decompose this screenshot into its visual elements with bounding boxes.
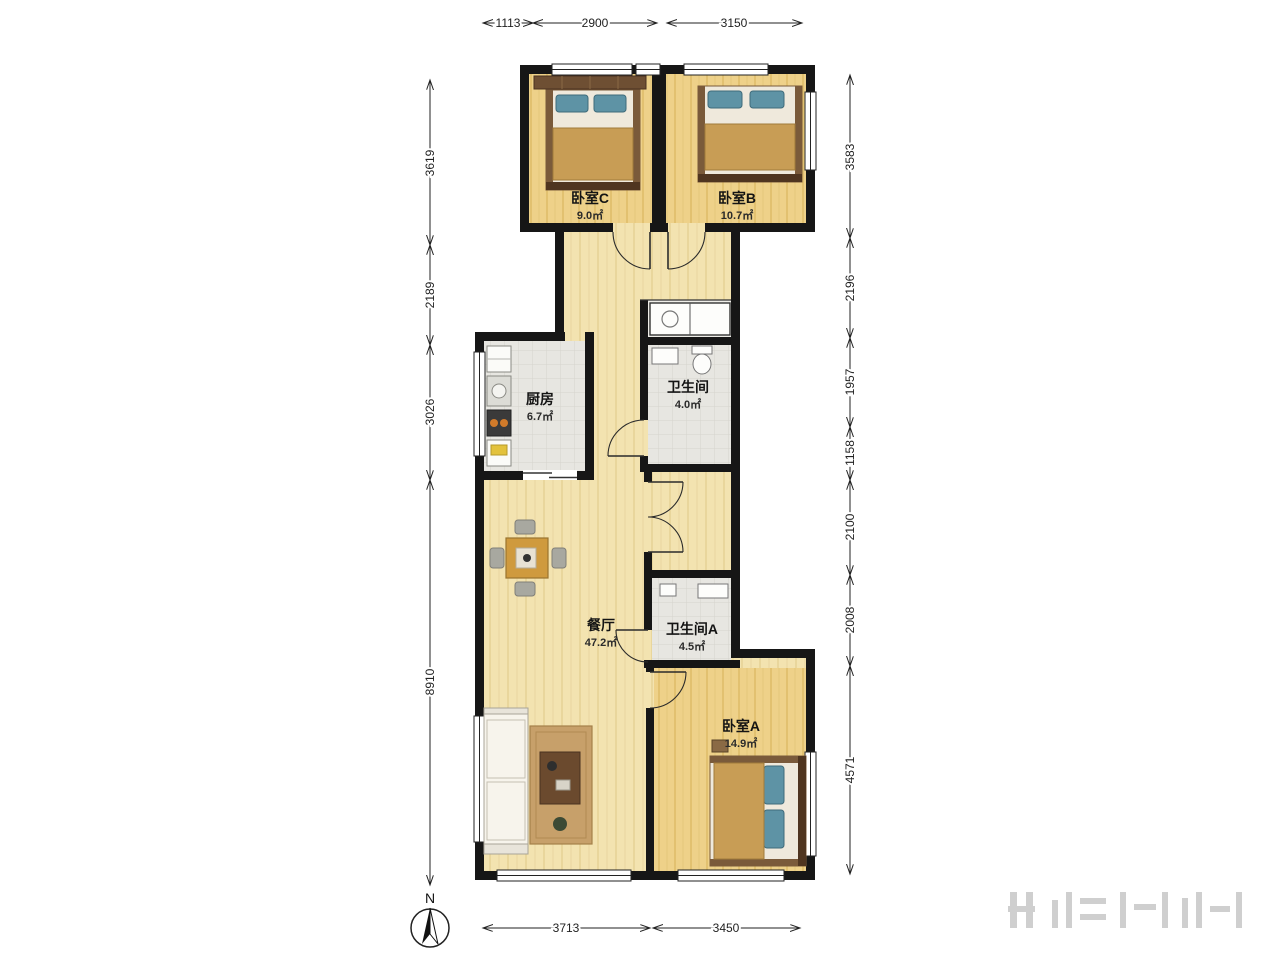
window-living-left [474, 716, 485, 842]
dining-living-area: 47.2㎡ [585, 635, 617, 649]
bedroom-c-label: 卧室C [571, 190, 609, 206]
kitchen-label: 厨房 [526, 391, 554, 407]
washing-machine [650, 303, 730, 335]
floor-plan-canvas: 1113 2900 3150 3713 3450 3619 2189 3026 … [0, 0, 1280, 960]
window-bedroom-a-right [805, 752, 816, 856]
dim-bottom-0: 3713 [553, 921, 580, 935]
dim-right-1: 2196 [843, 274, 857, 301]
sofa-group [484, 708, 592, 854]
window-bedroom-b-top [684, 64, 768, 75]
window-kitchen-left [474, 352, 485, 456]
dim-left-1: 2189 [423, 281, 437, 308]
window-bedroom-c-top [552, 64, 632, 75]
dim-left-2: 3026 [423, 398, 437, 425]
sliding-door-kitchen [523, 470, 577, 480]
kitchen-counter [487, 346, 511, 466]
dining-living-label: 餐厅 [586, 617, 615, 633]
bathroom-a-area: 4.5㎡ [679, 639, 705, 653]
north-label: N [425, 890, 435, 906]
dim-right-6: 4571 [843, 756, 857, 783]
window-hall-top [636, 64, 660, 75]
wardrobe-bedroom-c [534, 76, 646, 89]
bedroom-a-label: 卧室A [722, 718, 760, 734]
floor-plan-page: 1113 2900 3150 3713 3450 3619 2189 3026 … [0, 0, 1280, 960]
bedroom-c-area: 9.0㎡ [577, 208, 603, 222]
dim-right-5: 2008 [843, 606, 857, 633]
window-bedroom-b-right [805, 92, 816, 170]
dim-right-4: 2100 [843, 513, 857, 540]
dim-right-2: 1957 [843, 368, 857, 395]
north-compass: N [411, 890, 449, 947]
bathroom-label: 卫生间 [667, 379, 709, 395]
bed-bedroom-b [698, 86, 802, 182]
window-bedroom-a-bottom [678, 870, 784, 881]
bed-bedroom-c [546, 90, 640, 190]
kitchen-area: 6.7㎡ [527, 409, 553, 423]
dim-left-3: 8910 [423, 668, 437, 695]
bed-bedroom-a [710, 740, 806, 866]
dim-right-0: 3583 [843, 143, 857, 170]
bathroom-a-label: 卫生间A [666, 621, 718, 637]
dim-top-2: 3150 [721, 16, 748, 30]
bedroom-a-area: 14.9㎡ [725, 736, 757, 750]
dim-left-0: 3619 [423, 149, 437, 176]
dim-right-3: 1158 [843, 440, 857, 466]
window-living-bottom [497, 870, 631, 881]
bathroom-area: 4.0㎡ [675, 397, 701, 411]
dim-bottom-1: 3450 [713, 921, 740, 935]
dim-top-0: 1113 [496, 16, 521, 30]
watermark [1008, 892, 1242, 928]
dim-top-1: 2900 [582, 16, 609, 30]
bedroom-b-label: 卧室B [718, 190, 756, 206]
bedroom-b-area: 10.7㎡ [721, 208, 753, 222]
